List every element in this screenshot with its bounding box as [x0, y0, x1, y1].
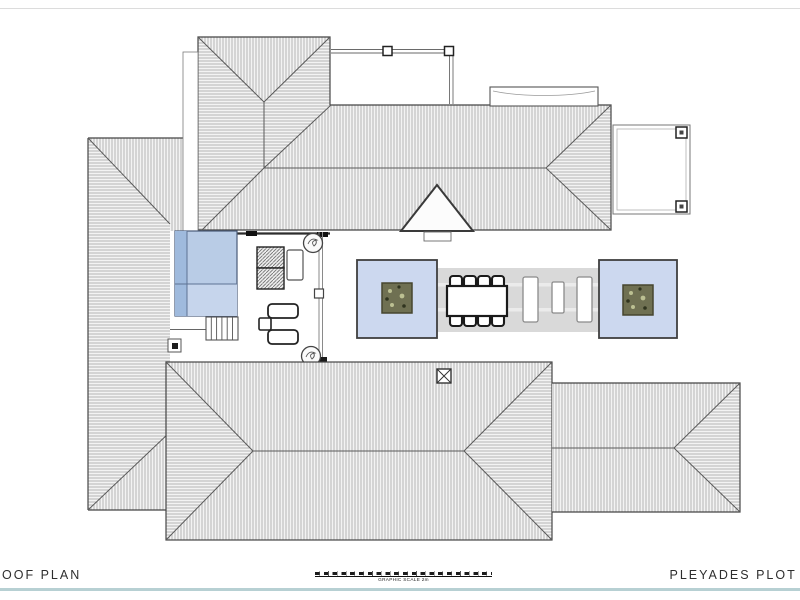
upper-wing-roof [198, 37, 611, 230]
north-terrace-frame [331, 47, 454, 105]
graphic-scale: GRAPHIC SCALE 2m [315, 571, 492, 584]
planter-tree-icon [623, 285, 653, 315]
sheet-border-top [0, 8, 800, 9]
stairs [206, 317, 238, 340]
east-pergola [613, 125, 690, 214]
titleblock-separator-line [0, 588, 800, 591]
lounge-chair [268, 330, 298, 344]
lounge-table [552, 282, 564, 313]
planter-tree-icon [382, 283, 412, 313]
pot-plant-icon [304, 234, 323, 253]
roof-hatch [437, 369, 451, 383]
gable-vent [424, 232, 451, 241]
project-title: PLEYADES PLOT N [670, 568, 800, 582]
terrace-post [383, 47, 392, 56]
armchair [257, 268, 284, 289]
pool [175, 231, 237, 316]
side-strip [183, 52, 198, 231]
dining-set [447, 276, 507, 326]
terrace-post [445, 47, 454, 56]
dining-table [447, 286, 507, 316]
lounge-chair [268, 304, 298, 318]
lounge-seat [577, 277, 592, 322]
door-fixture [168, 339, 181, 352]
planter-box-west [357, 260, 437, 338]
south-roof [166, 362, 552, 540]
drawing-title: ROOF PLAN [0, 568, 81, 582]
southeast-wing-roof [552, 383, 740, 512]
drawing-sheet: ROOF PLAN PLEYADES PLOT N GRAPHIC SCALE … [0, 0, 800, 600]
graphic-scale-caption: GRAPHIC SCALE 2m [334, 578, 472, 583]
side-table [287, 250, 303, 280]
awning [490, 87, 598, 106]
courtyard [168, 231, 330, 366]
wall-marker [246, 231, 257, 236]
pergola-post [676, 201, 687, 212]
pergola-post [676, 127, 687, 138]
graphic-scale-bar [315, 571, 492, 577]
planter-box-east [599, 260, 677, 338]
small-table [259, 318, 271, 330]
lounge-seat [523, 277, 538, 322]
roof-plan-drawing [0, 0, 800, 600]
armchair [257, 247, 284, 268]
